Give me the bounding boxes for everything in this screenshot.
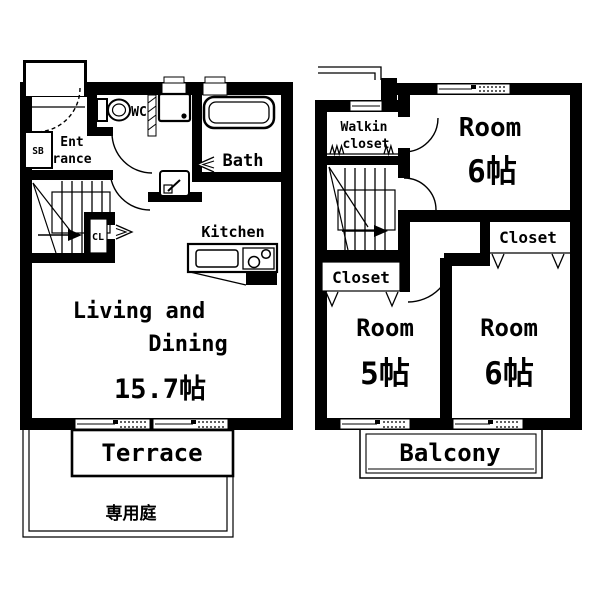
room-se-label: Room xyxy=(480,314,538,342)
room-sw-window xyxy=(340,419,410,429)
entrance-label-line2: rance xyxy=(52,152,91,167)
walkin-closet-label-line1: Walkin xyxy=(341,120,388,135)
bathtub-icon xyxy=(204,97,274,128)
closet-cl-label: CL xyxy=(92,232,104,243)
washing-machine-pan-icon xyxy=(159,94,190,121)
room-ne-size: 6帖 xyxy=(467,154,517,190)
living-size-label: 15.7帖 xyxy=(114,374,206,405)
bath-label: Bath xyxy=(223,151,264,171)
toilet-icon xyxy=(97,99,130,121)
room-sw-size: 5帖 xyxy=(360,356,410,392)
garden-label: 専用庭 xyxy=(106,503,157,524)
walkin-closet-label-line2: closet xyxy=(343,137,390,152)
wc-label: WC xyxy=(131,105,147,120)
kitchen-sink-icon xyxy=(196,250,238,267)
kitchen-label: Kitchen xyxy=(201,223,264,241)
bath-window xyxy=(203,83,227,95)
living-label-line2: Dining xyxy=(148,332,227,357)
shoe-box-label: SB xyxy=(32,146,44,157)
room-se-window xyxy=(453,419,523,429)
closet-west-label: Closet xyxy=(332,268,390,287)
room-ne-label: Room xyxy=(459,113,522,143)
washroom-folding-partition xyxy=(148,95,156,136)
entrance-label-line1: Ent xyxy=(60,135,83,150)
living-window-right xyxy=(153,419,228,429)
balcony-label: Balcony xyxy=(399,439,500,467)
floorplan-image: WC Bath Kitchen Ent rance SB CL Living a… xyxy=(0,0,600,600)
living-window-left xyxy=(75,419,150,429)
room-se-size: 6帖 xyxy=(484,356,534,392)
living-label-line1: Living and xyxy=(73,299,205,324)
closet-east-label: Closet xyxy=(499,228,557,247)
room-ne-window xyxy=(437,84,510,94)
room-sw-label: Room xyxy=(356,314,414,342)
terrace-label: Terrace xyxy=(101,439,202,467)
washbasin-icon xyxy=(160,171,189,196)
